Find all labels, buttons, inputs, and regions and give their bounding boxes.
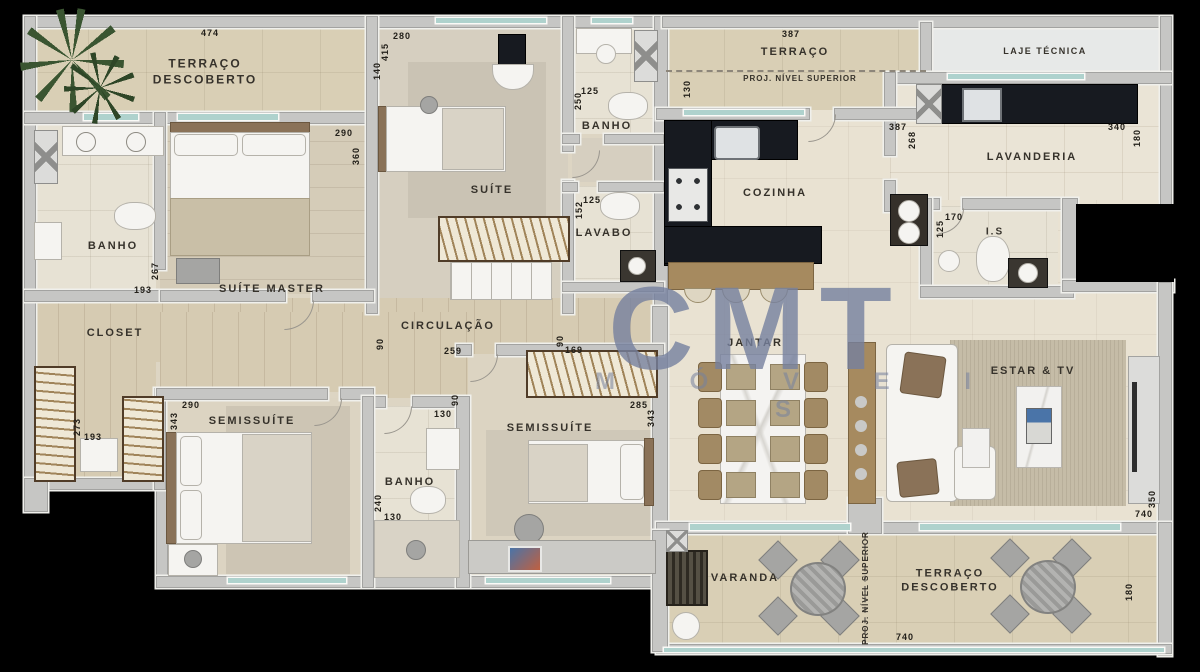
dimension-290-4: 290 xyxy=(335,128,353,138)
window-door-glass xyxy=(690,524,850,530)
window-door-glass xyxy=(920,524,1120,530)
dimension-740-37: 740 xyxy=(896,632,914,642)
outdoor-table xyxy=(1020,560,1076,614)
dimension-125-33: 125 xyxy=(935,220,945,238)
wall xyxy=(1158,282,1172,534)
semissuite2-headboard xyxy=(644,438,654,506)
semissuite2-tv xyxy=(508,546,542,572)
laundry-cabinet xyxy=(916,84,942,124)
wall xyxy=(24,478,48,512)
dimension-130-23: 130 xyxy=(384,512,402,522)
room-label-varanda: VARANDA xyxy=(711,571,779,585)
dimension-152-9: 152 xyxy=(574,201,584,219)
closet-pouf xyxy=(80,438,118,472)
varanda-sink xyxy=(672,612,700,640)
banho1-toilet xyxy=(410,486,446,514)
room-label-semissuite-1: SEMISSUÍTE xyxy=(209,414,296,428)
dining-chair xyxy=(804,434,828,464)
sideboard-knob xyxy=(855,444,867,456)
room-label-banho-semissuite-1: BANHO xyxy=(385,475,435,489)
kitchen-counter xyxy=(664,226,822,264)
dimension-90-20: 90 xyxy=(450,394,460,406)
pillow xyxy=(620,444,644,500)
proj-line-top xyxy=(666,70,926,72)
wall xyxy=(562,182,578,192)
room-label-lavabo: LAVABO xyxy=(576,226,633,240)
dimension-259-17: 259 xyxy=(444,346,462,356)
outdoor-table xyxy=(790,562,846,616)
wall xyxy=(362,396,374,588)
dimension-474-0: 474 xyxy=(201,28,219,38)
is-vanity-sink xyxy=(1018,263,1038,283)
window xyxy=(178,114,278,120)
wall xyxy=(598,182,664,192)
room-label-banho-master: BANHO xyxy=(88,239,138,253)
kitchen-sink xyxy=(714,126,760,160)
suite-tv xyxy=(498,34,526,66)
wall xyxy=(1160,16,1172,210)
semissuite1-blanket xyxy=(242,434,312,542)
room-label-lavanderia: LAVANDERIA xyxy=(987,150,1077,164)
room-label-proj-nivel-superior-vert: PROJ. NÍVEL SUPERIOR xyxy=(861,531,871,645)
room-label-suite: SUÍTE xyxy=(471,183,513,197)
dimension-387-26: 387 xyxy=(782,29,800,39)
wall xyxy=(604,134,664,144)
dimension-273-12: 273 xyxy=(72,418,82,436)
suite-bed-blanket xyxy=(442,108,504,170)
wall xyxy=(562,134,580,144)
suite-master-bedspread xyxy=(170,198,310,256)
room-label-suite-master: SUÍTE MASTER xyxy=(219,282,325,296)
dimension-350-34: 350 xyxy=(1147,490,1157,508)
dimension-125-6: 125 xyxy=(581,86,599,96)
dimension-125-8: 125 xyxy=(583,195,601,205)
dimension-193-11: 193 xyxy=(134,285,152,295)
palm-tree-icon xyxy=(64,52,136,124)
kitchen-stove xyxy=(668,168,708,222)
dimension-387-28: 387 xyxy=(889,122,907,132)
floor-plan-image: TERRAÇODESCOBERTOSUÍTEBANHOLAVABOBANHOSU… xyxy=(0,0,1200,672)
banho-suite-toilet xyxy=(608,92,648,120)
window xyxy=(228,578,346,583)
wall xyxy=(562,16,574,152)
banho-master-toilet xyxy=(114,202,156,230)
window xyxy=(948,74,1084,79)
side-table xyxy=(962,428,990,468)
lavabo-toilet xyxy=(600,192,640,220)
suite-wardrobe xyxy=(438,216,570,262)
room-label-is: I.S xyxy=(986,226,1004,239)
tv-screen xyxy=(1132,382,1137,472)
shower-box xyxy=(634,30,658,82)
closet-wardrobe xyxy=(34,366,76,482)
building-notch xyxy=(1076,204,1174,282)
dimension-140-3: 140 xyxy=(372,62,382,80)
room-label-proj-nivel-superior-top: PROJ. NÍVEL SUPERIOR xyxy=(743,74,857,84)
semissuite2-blanket xyxy=(528,444,588,502)
washer-door xyxy=(898,200,920,222)
dimension-267-10: 267 xyxy=(150,262,160,280)
dimension-180-36: 180 xyxy=(1124,583,1134,601)
wall xyxy=(156,388,328,400)
placemat xyxy=(726,472,756,498)
wall xyxy=(1158,522,1172,656)
dimension-280-1: 280 xyxy=(393,31,411,41)
pillow xyxy=(174,134,238,156)
dimension-180-31: 180 xyxy=(1132,129,1142,147)
dimension-340-30: 340 xyxy=(1108,122,1126,132)
dining-chair xyxy=(698,434,722,464)
dining-chair xyxy=(804,470,828,500)
semissuite2-desk xyxy=(468,540,656,574)
room-label-closet: CLOSET xyxy=(87,326,144,340)
room-label-terraco-tr: TERRAÇO xyxy=(761,45,829,59)
dryer-door xyxy=(898,222,920,244)
dimension-170-32: 170 xyxy=(945,212,963,222)
wall xyxy=(662,16,1172,28)
dimension-250-7: 250 xyxy=(573,92,583,110)
placemat xyxy=(726,436,756,462)
banho1-shower-drain xyxy=(406,540,426,560)
room-label-banho-suite: BANHO xyxy=(582,119,632,133)
room-label-circulacao: CIRCULAÇÃO xyxy=(401,319,495,333)
barbecue-grill xyxy=(666,550,708,606)
banho-master-sink xyxy=(76,132,96,152)
dimension-130-21: 130 xyxy=(434,409,452,419)
dimension-130-27: 130 xyxy=(682,80,692,98)
dimension-415-2: 415 xyxy=(380,43,390,61)
shower-box xyxy=(34,130,58,184)
suite-lamp xyxy=(420,96,438,114)
banho-master-sink xyxy=(126,132,146,152)
window xyxy=(592,18,632,23)
shaft-box xyxy=(666,530,688,552)
placemat xyxy=(770,472,800,498)
wall xyxy=(962,198,1064,210)
pillow xyxy=(180,490,202,540)
is-sink xyxy=(938,250,960,272)
watermark-subtitle: M Ó V E I S xyxy=(560,368,1040,424)
room-label-terraco-descoberto-br: TERRAÇODESCOBERTO xyxy=(901,567,998,596)
room-label-terraco-descoberto-tl: TERRAÇODESCOBERTO xyxy=(153,56,257,87)
pillow xyxy=(180,436,202,486)
window xyxy=(436,18,546,23)
sideboard-knob xyxy=(855,468,867,480)
window xyxy=(684,110,804,115)
laundry-sink xyxy=(962,88,1002,122)
closet-wardrobe xyxy=(122,396,164,482)
banho1-vanity xyxy=(426,428,460,470)
semissuite1-lamp xyxy=(184,550,202,568)
pillow xyxy=(242,134,306,156)
sofa-cushion xyxy=(896,458,940,498)
placemat xyxy=(770,436,800,462)
dimension-240-22: 240 xyxy=(373,494,383,512)
wall xyxy=(366,16,378,314)
room-label-laje-tecnica: LAJE TÉCNICA xyxy=(1003,46,1087,58)
dimension-343-15: 343 xyxy=(169,412,179,430)
window xyxy=(486,578,610,583)
dimension-740-35: 740 xyxy=(1135,509,1153,519)
dimension-360-5: 360 xyxy=(351,147,361,165)
banho-suite-sink xyxy=(596,44,616,64)
banho-master-cabinet xyxy=(34,222,62,260)
balcony-railing xyxy=(664,648,1164,652)
dining-chair xyxy=(698,470,722,500)
room-label-cozinha: COZINHA xyxy=(743,186,807,200)
floor-circulacao-2 xyxy=(160,312,370,392)
dimension-193-13: 193 xyxy=(84,432,102,442)
suite-master-bench xyxy=(176,258,220,284)
dimension-90-16: 90 xyxy=(375,338,385,350)
dimension-290-14: 290 xyxy=(182,400,200,410)
dimension-268-29: 268 xyxy=(907,131,917,149)
